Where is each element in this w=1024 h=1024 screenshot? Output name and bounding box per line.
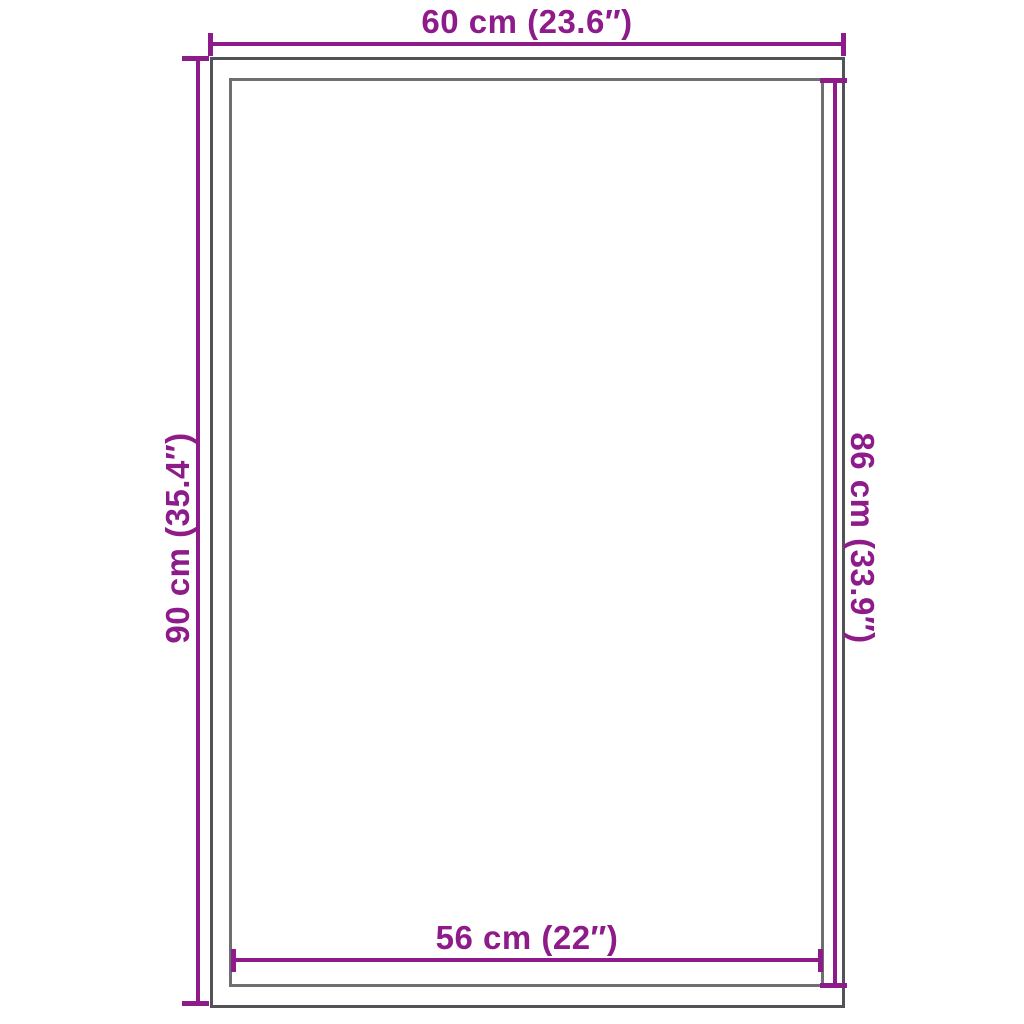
dimension-diagram: 60 cm (23.6″) 90 cm (35.4″) 86 cm (33.9″… xyxy=(0,0,1024,1024)
bottom-dimension-line xyxy=(233,958,821,962)
right-dimension-bottom-tick xyxy=(820,983,847,988)
inner-rectangle xyxy=(229,78,824,987)
right-dimension-top-tick xyxy=(820,78,847,83)
top-dimension-label: 60 cm (23.6″) xyxy=(210,4,844,40)
left-dimension-label: 90 cm (35.4″) xyxy=(160,328,196,748)
right-dimension-label: 86 cm (33.9″) xyxy=(844,328,880,748)
left-dimension-bottom-tick xyxy=(182,1001,209,1006)
left-dimension-line xyxy=(196,58,200,1004)
top-dimension-line xyxy=(210,42,844,46)
bottom-dimension-label: 56 cm (22″) xyxy=(233,920,821,956)
left-dimension-top-tick xyxy=(182,56,209,61)
right-dimension-line xyxy=(833,80,837,986)
